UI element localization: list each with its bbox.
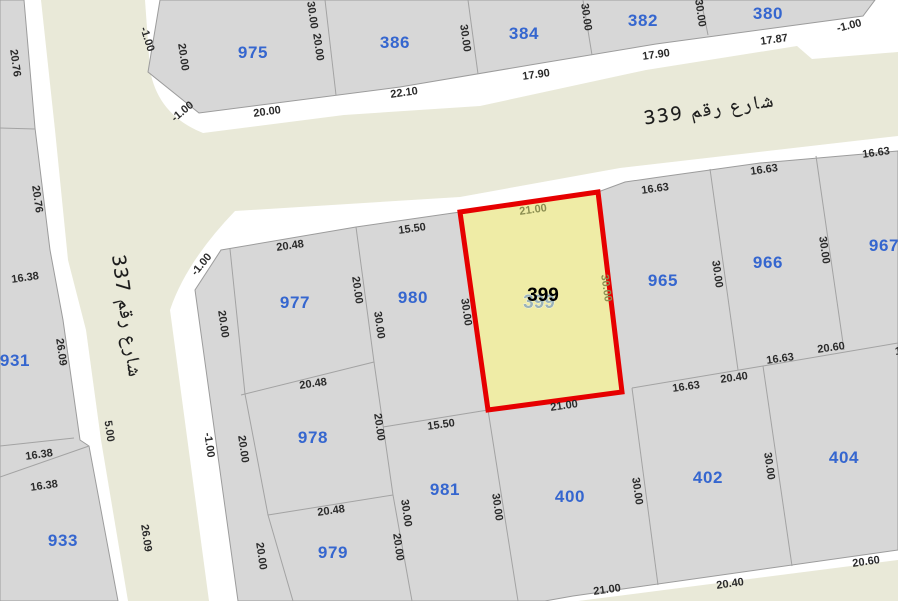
svg-text:400: 400 — [555, 487, 585, 506]
svg-text:975: 975 — [238, 43, 268, 62]
svg-text:980: 980 — [398, 288, 428, 307]
svg-text:933: 933 — [48, 531, 78, 550]
svg-text:978: 978 — [298, 428, 328, 447]
svg-text:966: 966 — [753, 253, 783, 272]
svg-text:386: 386 — [380, 33, 410, 52]
svg-text:399: 399 — [527, 285, 559, 306]
svg-text:382: 382 — [628, 11, 658, 30]
svg-text:979: 979 — [318, 543, 348, 562]
svg-text:981: 981 — [430, 480, 460, 499]
svg-text:931: 931 — [0, 351, 30, 370]
svg-text:404: 404 — [829, 448, 859, 467]
svg-text:16: 16 — [894, 344, 898, 358]
svg-text:977: 977 — [280, 293, 310, 312]
svg-text:965: 965 — [648, 271, 678, 290]
svg-text:402: 402 — [693, 468, 723, 487]
svg-text:380: 380 — [753, 4, 783, 23]
svg-text:384: 384 — [509, 24, 539, 43]
svg-text:967: 967 — [869, 236, 898, 255]
